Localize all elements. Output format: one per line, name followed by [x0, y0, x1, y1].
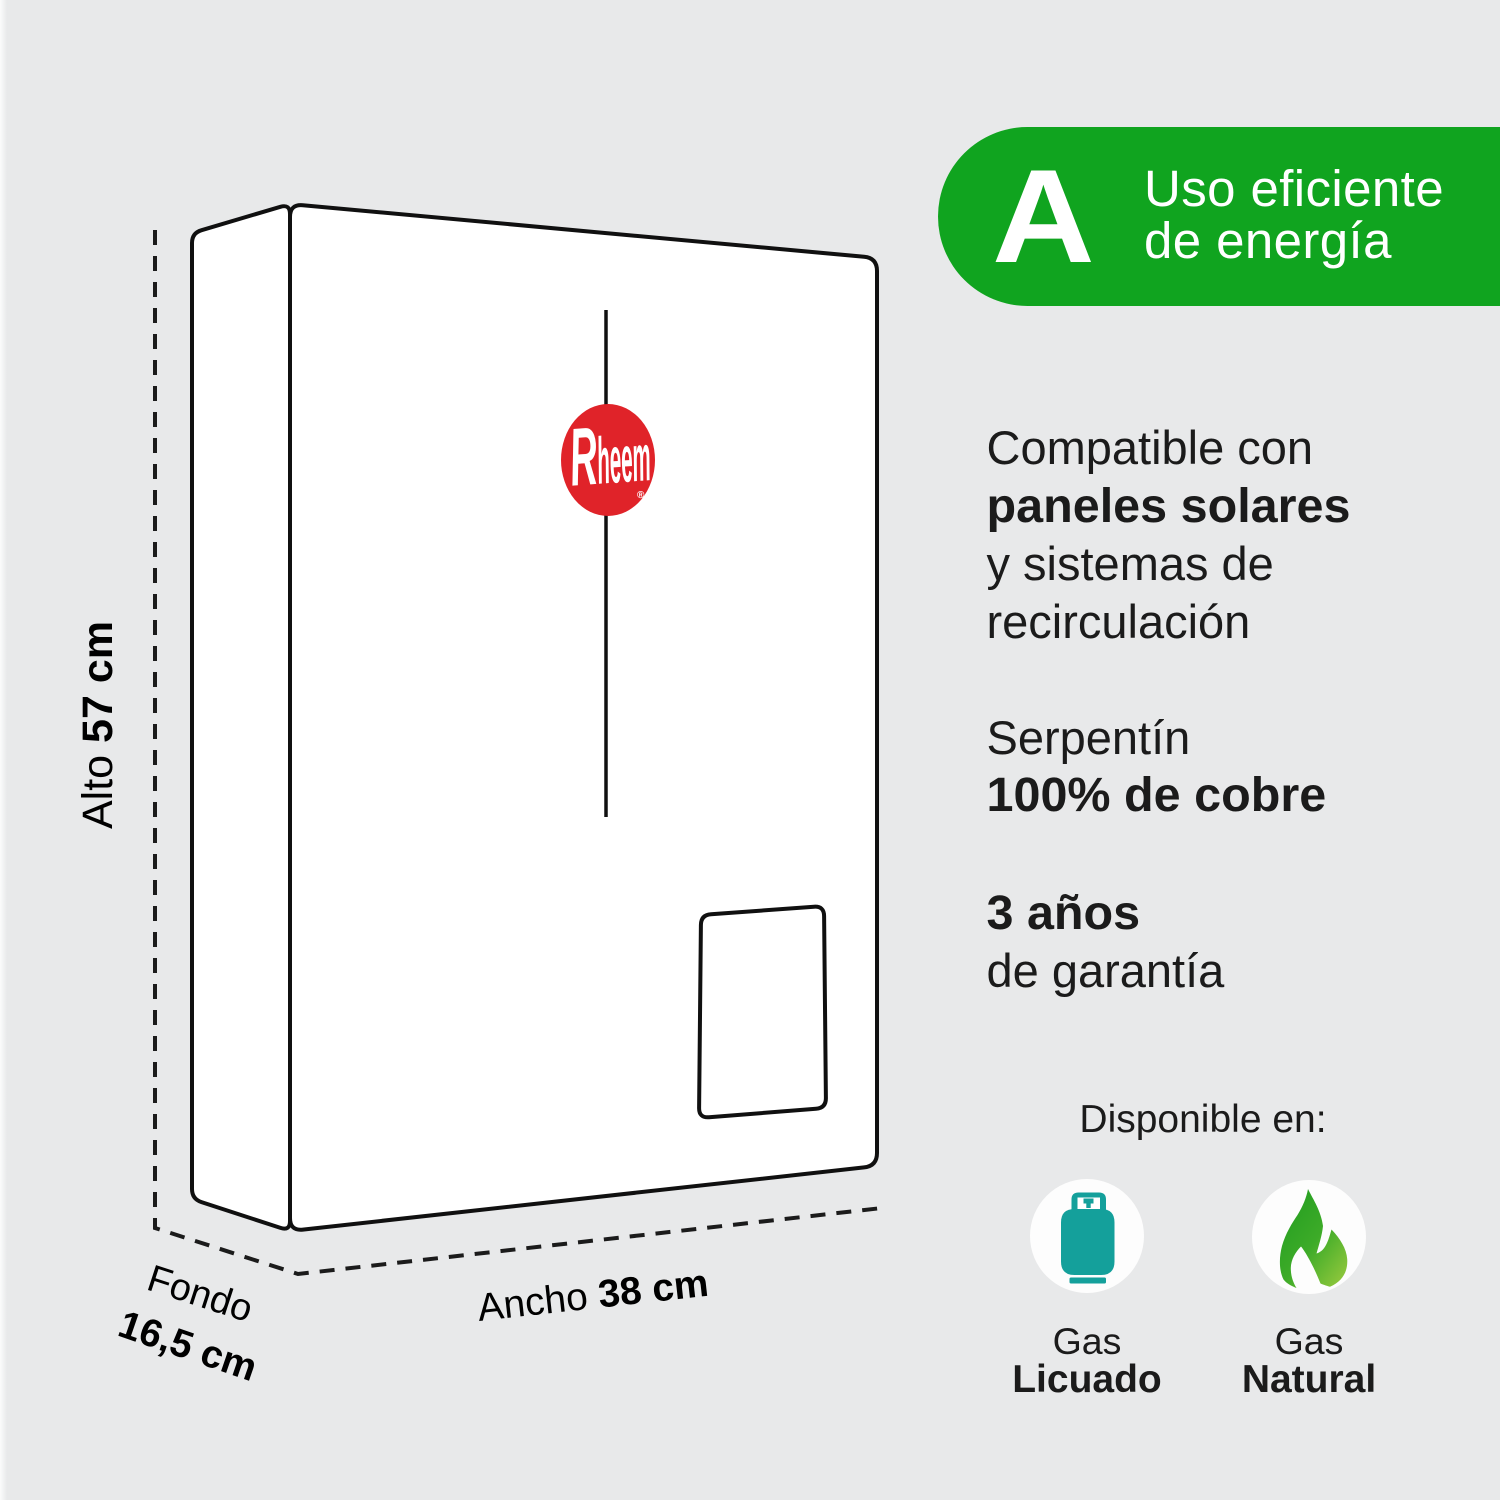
svg-text:Alto 57 cm: Alto 57 cm: [74, 621, 122, 829]
svg-text:heem: heem: [595, 422, 653, 498]
svg-text:Ancho 38 cm: Ancho 38 cm: [475, 1262, 710, 1330]
svg-text:®: ®: [637, 490, 645, 501]
